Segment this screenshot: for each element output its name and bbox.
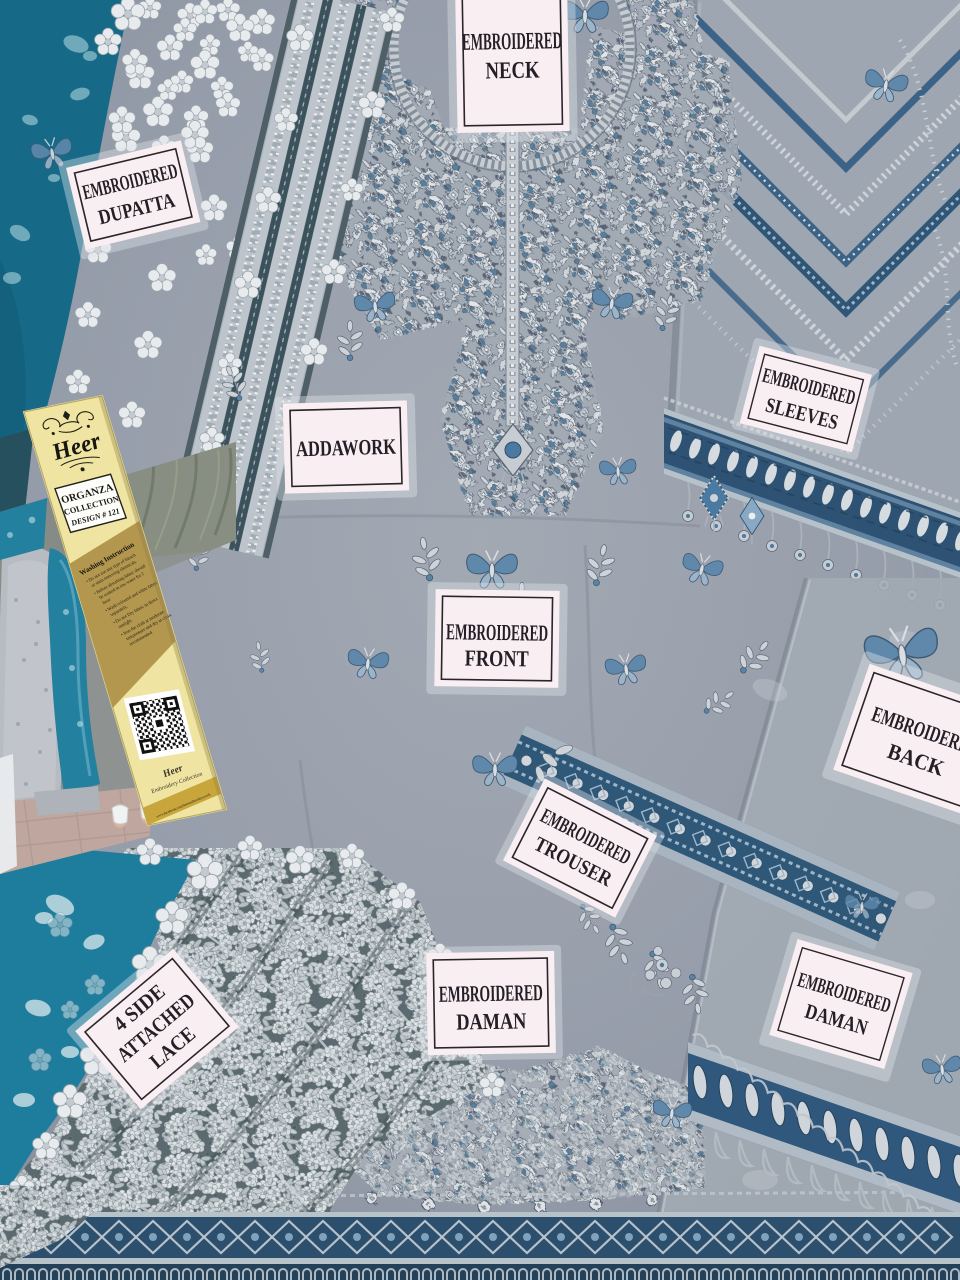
svg-text:FRONT: FRONT <box>465 646 529 672</box>
svg-text:EMBROIDERED: EMBROIDERED <box>462 28 562 56</box>
svg-text:EMBROIDERED: EMBROIDERED <box>439 980 543 1007</box>
svg-text:EMBROIDERED: EMBROIDERED <box>446 619 548 645</box>
svg-text:ADDAWORK: ADDAWORK <box>296 434 397 462</box>
svg-text:DAMAN: DAMAN <box>456 1008 527 1034</box>
svg-text:NECK: NECK <box>485 58 540 85</box>
